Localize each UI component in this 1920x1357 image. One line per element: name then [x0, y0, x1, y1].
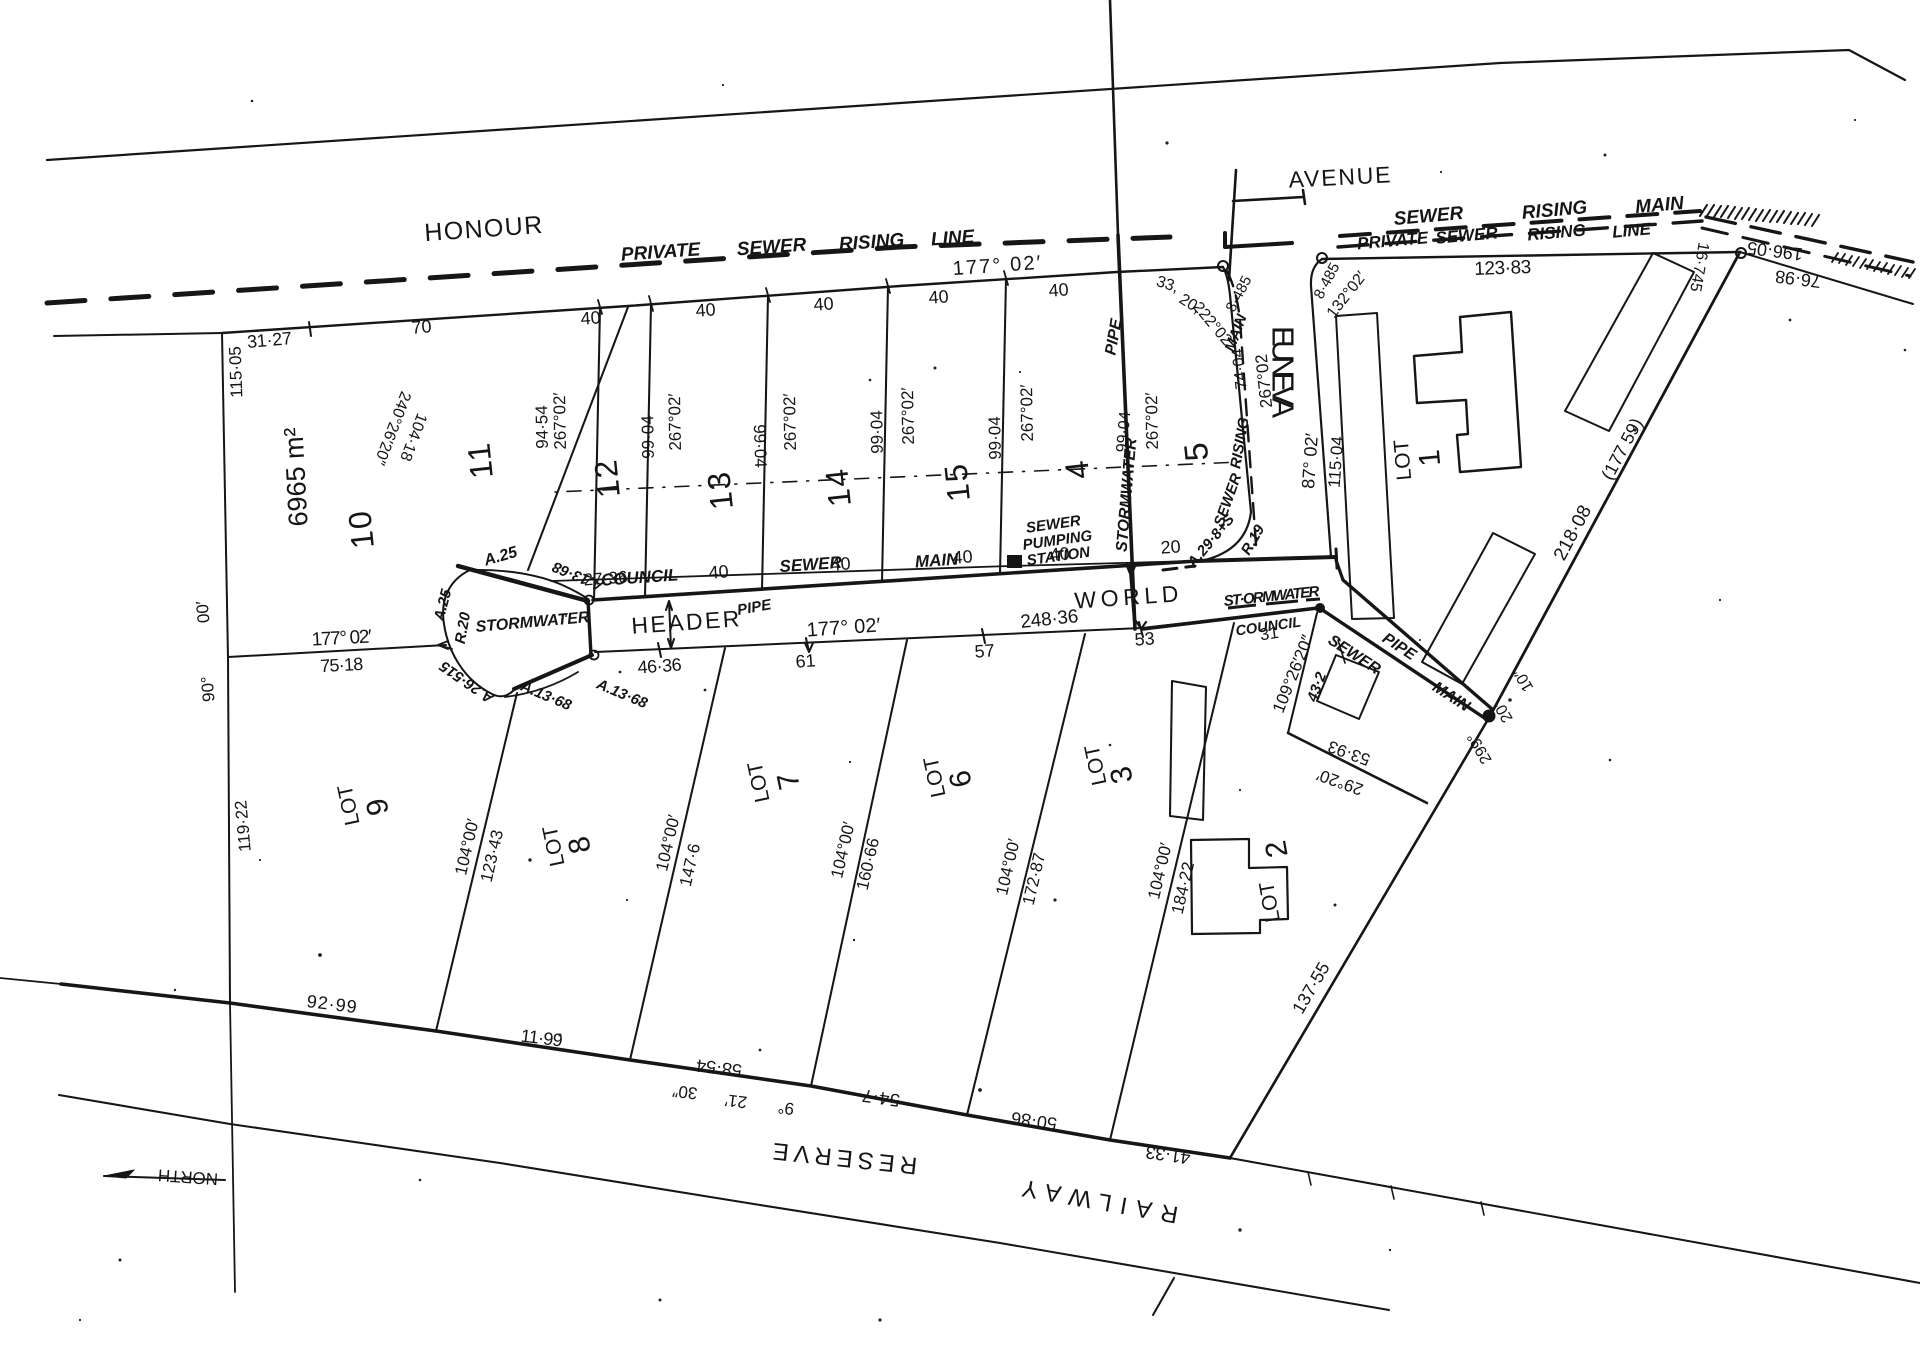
svg-text:115·04: 115·04: [1325, 436, 1348, 489]
svg-text:13: 13: [700, 468, 740, 511]
svg-text:5: 5: [1177, 441, 1216, 463]
svg-text:MAIN: MAIN: [914, 549, 959, 571]
svg-text:00′: 00′: [193, 600, 214, 624]
svg-text:11: 11: [460, 440, 500, 481]
svg-text:267°02′: 267°02′: [1017, 384, 1037, 442]
svg-text:87° 02′: 87° 02′: [1298, 432, 1322, 490]
svg-text:99·04: 99·04: [985, 416, 1005, 460]
svg-text:40: 40: [1048, 279, 1069, 300]
svg-text:53: 53: [1134, 628, 1155, 649]
svg-text:40: 40: [580, 307, 601, 328]
svg-text:LINE: LINE: [930, 226, 976, 250]
svg-text:267°02′: 267°02′: [898, 387, 918, 445]
svg-text:40: 40: [813, 293, 834, 314]
svg-text:267°02′: 267°02′: [550, 392, 570, 450]
svg-text:99·04: 99·04: [867, 410, 887, 454]
svg-text:46·36: 46·36: [637, 655, 682, 678]
svg-text:9°: 9°: [777, 1098, 795, 1119]
svg-text:40: 40: [928, 286, 949, 307]
svg-text:12: 12: [587, 456, 627, 499]
svg-text:31·27: 31·27: [246, 328, 293, 352]
svg-text:15: 15: [937, 460, 977, 503]
svg-text:123·83: 123·83: [1474, 257, 1532, 280]
svg-text:57: 57: [974, 640, 995, 661]
svg-text:177° 02′: 177° 02′: [311, 626, 372, 650]
svg-text:4: 4: [1058, 459, 1097, 481]
svg-text:EUNEVA: EUNEVA: [1266, 326, 1301, 418]
svg-text:75·18: 75·18: [320, 654, 364, 676]
svg-text:99·04: 99·04: [638, 415, 658, 459]
svg-text:90°: 90°: [197, 675, 218, 702]
svg-text:LINE: LINE: [1611, 219, 1652, 241]
svg-text:40: 40: [695, 299, 716, 320]
svg-text:20: 20: [1160, 536, 1181, 557]
svg-text:267°02′: 267°02′: [665, 393, 685, 451]
svg-text:LOT: LOT: [1390, 438, 1416, 481]
svg-text:267°02′: 267°02′: [1142, 392, 1162, 450]
svg-text:1: 1: [1413, 448, 1447, 468]
svg-text:6965 m²: 6965 m²: [278, 427, 313, 527]
svg-text:30″: 30″: [671, 1081, 698, 1103]
svg-text:115·05: 115·05: [226, 346, 247, 398]
svg-text:14: 14: [818, 465, 858, 508]
svg-text:61: 61: [795, 650, 816, 671]
svg-text:MAIN: MAIN: [1634, 193, 1685, 218]
svg-text:94·54: 94·54: [532, 405, 552, 449]
svg-text:99·04: 99·04: [750, 424, 771, 468]
svg-text:10: 10: [341, 507, 381, 550]
svg-text:21′: 21′: [724, 1090, 748, 1112]
svg-text:267°02′: 267°02′: [780, 393, 800, 451]
svg-text:40: 40: [708, 561, 729, 582]
svg-text:70: 70: [411, 316, 433, 338]
svg-text:99·04: 99·04: [1114, 411, 1135, 453]
